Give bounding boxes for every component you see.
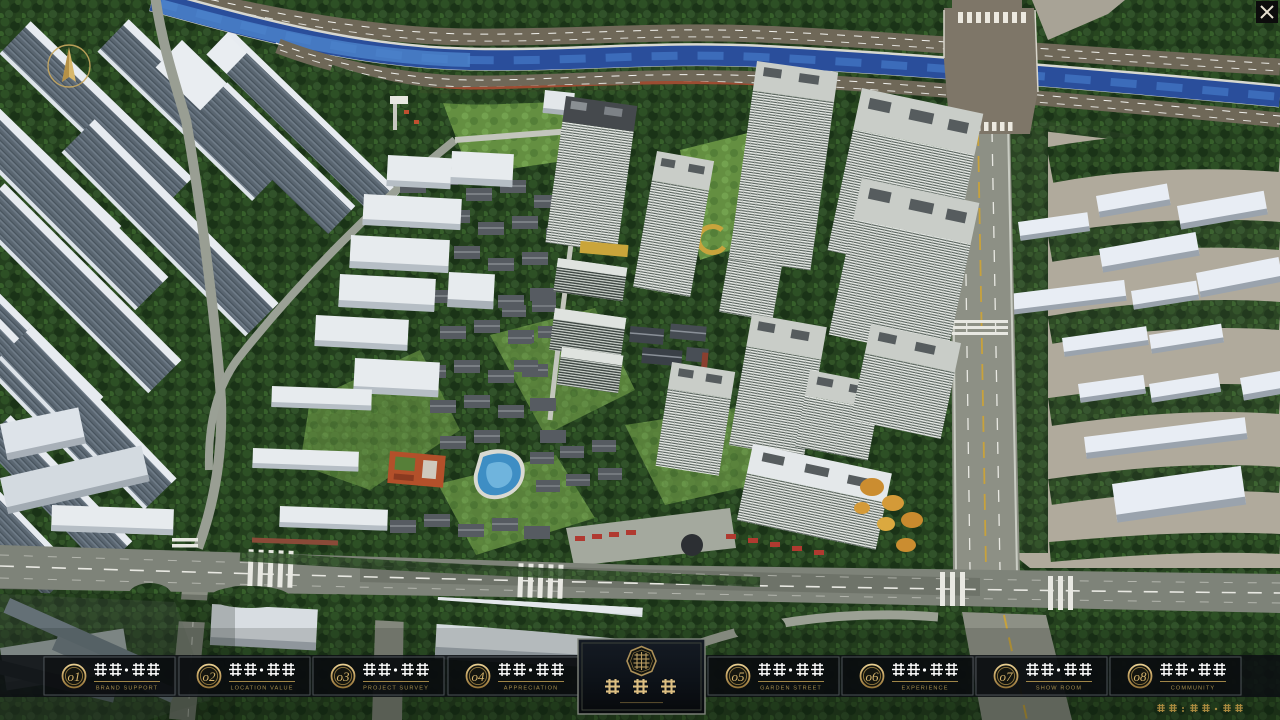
svg-text:APPRECIATION: APPRECIATION — [504, 686, 558, 692]
svg-text:COMMUNITY: COMMUNITY — [1171, 686, 1215, 692]
svg-text:o7: o7 — [1000, 669, 1014, 684]
svg-text:o4: o4 — [472, 669, 486, 684]
svg-text:o5: o5 — [732, 669, 746, 684]
svg-text:GARDEN STREET: GARDEN STREET — [760, 686, 822, 692]
svg-text:EXPERIENCE: EXPERIENCE — [901, 686, 948, 692]
svg-text:o8: o8 — [1134, 669, 1148, 684]
svg-text:BRAND SUPPORT: BRAND SUPPORT — [96, 686, 158, 692]
svg-text:SHOW ROOM: SHOW ROOM — [1036, 686, 1082, 692]
svg-text:o1: o1 — [68, 669, 81, 684]
svg-text:o2: o2 — [203, 669, 217, 684]
svg-text:LOCATION VALUE: LOCATION VALUE — [230, 686, 293, 692]
svg-text:PROJECT SURVEY: PROJECT SURVEY — [363, 686, 429, 692]
svg-text:o6: o6 — [866, 669, 880, 684]
svg-text:o3: o3 — [337, 669, 351, 684]
